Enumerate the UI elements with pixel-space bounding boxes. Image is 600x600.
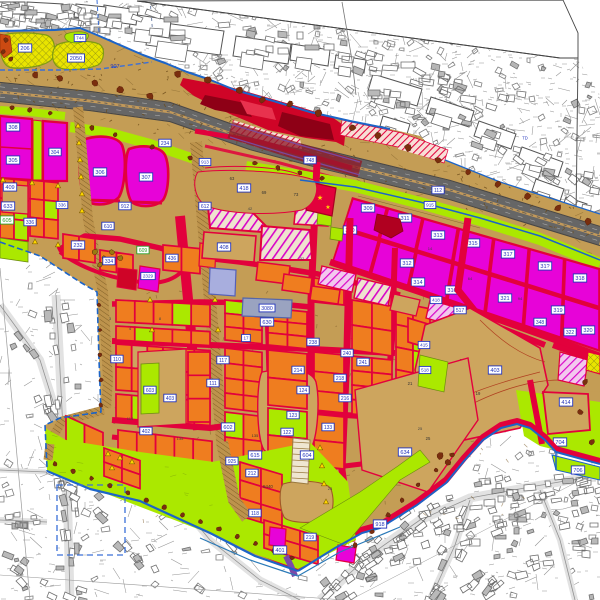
svg-text:436: 436 [168, 256, 177, 262]
svg-text:630: 630 [262, 320, 271, 326]
svg-text:25: 25 [426, 436, 431, 441]
svg-text:69: 69 [262, 190, 267, 195]
svg-text:206: 206 [20, 46, 29, 52]
svg-text:610: 610 [104, 224, 113, 230]
svg-text:602: 602 [223, 425, 232, 431]
svg-text:408: 408 [219, 245, 228, 251]
svg-text:304: 304 [51, 150, 60, 156]
svg-text:315: 315 [468, 241, 477, 247]
svg-text:240: 240 [343, 351, 352, 357]
svg-text:612: 612 [201, 204, 210, 210]
svg-text:216: 216 [341, 396, 350, 402]
svg-text:409: 409 [5, 185, 14, 191]
svg-text:21: 21 [408, 381, 413, 386]
svg-text:★: ★ [325, 204, 330, 211]
svg-text:312: 312 [402, 261, 411, 267]
svg-text:907: 907 [110, 64, 119, 70]
svg-text:336: 336 [58, 203, 66, 208]
svg-text:218: 218 [336, 376, 345, 382]
svg-text:518: 518 [421, 368, 429, 373]
svg-text:925: 925 [228, 459, 237, 465]
svg-text:609: 609 [139, 248, 148, 254]
svg-text:744: 744 [76, 36, 84, 41]
svg-text:135: 135 [252, 433, 259, 438]
svg-text:318: 318 [575, 276, 584, 282]
svg-text:748: 748 [306, 158, 315, 164]
svg-text:403: 403 [490, 368, 499, 374]
svg-text:114: 114 [127, 416, 134, 421]
svg-text:336: 336 [26, 220, 35, 226]
svg-text:915: 915 [426, 203, 434, 208]
svg-text:309: 309 [363, 206, 372, 212]
svg-text:418: 418 [239, 186, 248, 192]
svg-text:110: 110 [113, 357, 121, 363]
svg-text:232: 232 [73, 243, 82, 249]
svg-text:212: 212 [248, 471, 257, 477]
svg-text:403: 403 [166, 396, 175, 402]
svg-text:3080: 3080 [261, 306, 273, 312]
svg-text:133: 133 [324, 425, 333, 431]
svg-text:64: 64 [468, 276, 473, 281]
svg-text:219: 219 [306, 535, 315, 541]
svg-text:401: 401 [275, 548, 284, 554]
svg-text:402: 402 [142, 429, 151, 435]
svg-text:42: 42 [248, 206, 253, 211]
svg-text:31?: 31? [540, 264, 549, 270]
svg-text:912: 912 [121, 204, 130, 210]
svg-text:214: 214 [294, 368, 303, 374]
svg-text:634: 634 [400, 450, 409, 456]
svg-text:415: 415 [420, 343, 428, 348]
svg-text:322: 322 [566, 330, 575, 336]
svg-text:122: 122 [283, 430, 292, 436]
svg-text:5440: 5440 [263, 484, 273, 489]
svg-text:604: 604 [302, 453, 311, 459]
svg-text:334: 334 [105, 259, 114, 265]
svg-text:73: 73 [294, 192, 299, 197]
svg-text:32: 32 [300, 256, 305, 261]
svg-text:348: 348 [536, 320, 545, 326]
svg-text:306: 306 [95, 170, 104, 176]
svg-text:313: 313 [433, 233, 442, 239]
svg-text:★: ★ [317, 194, 323, 202]
svg-text:706: 706 [573, 468, 582, 474]
svg-text:14: 14 [428, 246, 433, 251]
svg-text:918: 918 [375, 522, 384, 528]
svg-text:2329: 2329 [143, 274, 154, 279]
svg-text:2050: 2050 [70, 56, 82, 62]
svg-text:234: 234 [161, 141, 170, 147]
svg-text:517: 517 [456, 308, 465, 314]
svg-text:118: 118 [251, 511, 259, 517]
svg-text:135: 135 [177, 436, 184, 441]
svg-text:633: 633 [3, 204, 12, 210]
svg-text:117: 117 [219, 358, 227, 364]
svg-text:615: 615 [250, 453, 259, 459]
svg-text:321: 321 [500, 296, 509, 302]
svg-text:414: 414 [561, 400, 570, 406]
svg-text:704: 704 [555, 440, 564, 446]
svg-text:603: 603 [146, 388, 155, 394]
svg-text:25: 25 [418, 426, 423, 431]
svg-text:308: 308 [8, 125, 17, 131]
svg-text:TD: TD [522, 136, 528, 141]
svg-text:124: 124 [299, 388, 308, 394]
svg-text:305: 305 [8, 158, 17, 164]
svg-text:241: 241 [359, 360, 368, 366]
svg-text:314: 314 [413, 280, 422, 286]
svg-text:320: 320 [583, 328, 592, 334]
svg-text:111: 111 [209, 381, 217, 387]
svg-text:311: 311 [401, 216, 410, 222]
svg-text:123: 123 [289, 413, 298, 419]
svg-text:112: 112 [434, 188, 442, 194]
svg-text:23: 23 [328, 486, 333, 491]
svg-text:238: 238 [309, 340, 318, 346]
svg-text:319: 319 [553, 308, 562, 314]
svg-text:17: 17 [243, 336, 249, 341]
svg-text:913: 913 [201, 160, 209, 165]
svg-text:317: 317 [503, 252, 512, 258]
svg-text:94: 94 [518, 296, 523, 301]
svg-text:63: 63 [230, 176, 235, 181]
svg-text:418: 418 [432, 298, 440, 303]
svg-text:605: 605 [2, 218, 11, 224]
svg-text:307: 307 [141, 175, 150, 181]
